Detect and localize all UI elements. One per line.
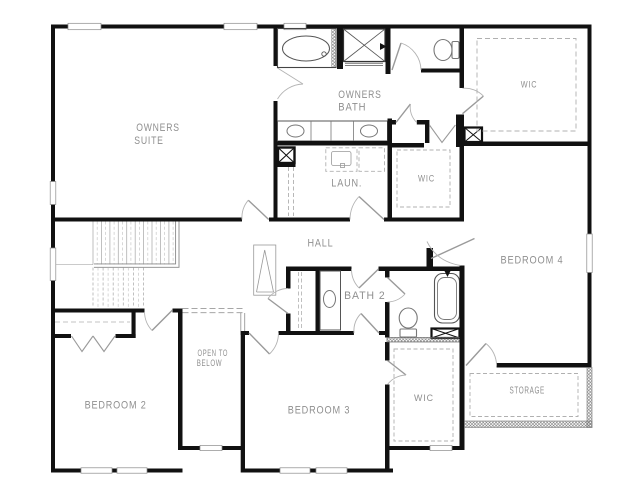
svg-text:STORAGE: STORAGE: [509, 386, 545, 397]
svg-text:WIC: WIC: [414, 393, 434, 404]
svg-text:WIC: WIC: [521, 80, 538, 91]
svg-text:OWNERS: OWNERS: [338, 89, 381, 101]
svg-text:BEDROOM 4: BEDROOM 4: [501, 255, 564, 267]
svg-text:BELOW: BELOW: [197, 358, 223, 369]
svg-text:BEDROOM 2: BEDROOM 2: [85, 400, 147, 412]
svg-text:BATH 2: BATH 2: [344, 290, 386, 302]
svg-text:WIC: WIC: [418, 174, 435, 185]
svg-text:SUITE: SUITE: [134, 135, 164, 147]
svg-text:OWNERS: OWNERS: [136, 122, 180, 134]
svg-text:HALL: HALL: [308, 238, 334, 250]
svg-text:BATH: BATH: [338, 102, 366, 114]
svg-text:BEDROOM 3: BEDROOM 3: [288, 405, 351, 417]
svg-text:LAUN.: LAUN.: [331, 178, 362, 190]
